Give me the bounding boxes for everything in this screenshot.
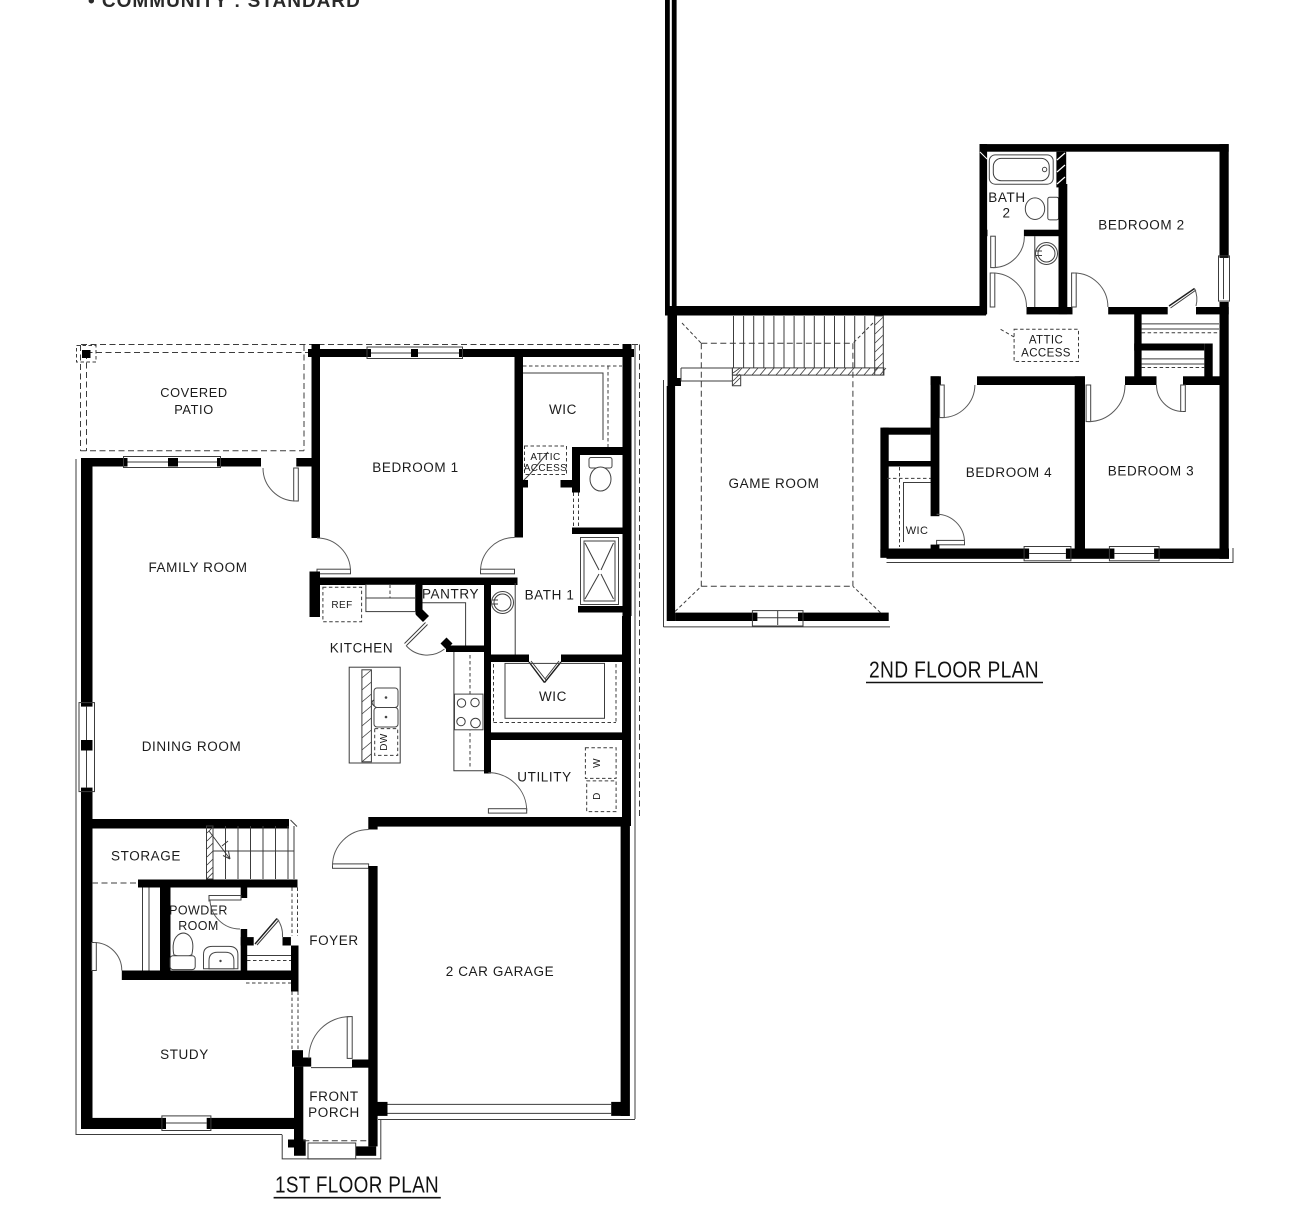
svg-text:2: 2 — [1002, 206, 1010, 221]
svg-text:GAME ROOM: GAME ROOM — [729, 476, 820, 491]
svg-text:ROOM: ROOM — [178, 919, 219, 933]
svg-text:2ND FLOOR PLAN: 2ND FLOOR PLAN — [869, 657, 1039, 683]
svg-text:POWDER: POWDER — [169, 904, 228, 918]
svg-text:ATTIC: ATTIC — [530, 452, 560, 463]
svg-text:UTILITY: UTILITY — [517, 770, 571, 785]
svg-text:KITCHEN: KITCHEN — [330, 641, 393, 656]
svg-text:BEDROOM 3: BEDROOM 3 — [1108, 464, 1194, 479]
svg-text:ACCESS: ACCESS — [524, 463, 568, 474]
svg-text:PORCH: PORCH — [308, 1105, 360, 1120]
svg-text:ACCESS: ACCESS — [1021, 348, 1071, 360]
svg-text:BATH: BATH — [988, 190, 1025, 205]
svg-text:1ST FLOOR PLAN: 1ST FLOOR PLAN — [275, 1172, 439, 1198]
svg-text:BATH 1: BATH 1 — [525, 588, 575, 603]
svg-text:FAMILY ROOM: FAMILY ROOM — [148, 560, 247, 575]
svg-text:DW: DW — [379, 733, 390, 751]
svg-text:BEDROOM 1: BEDROOM 1 — [372, 460, 458, 475]
svg-text:FOYER: FOYER — [309, 933, 359, 948]
svg-text:STUDY: STUDY — [160, 1047, 209, 1062]
svg-text:ATTIC: ATTIC — [1029, 335, 1063, 347]
svg-text:D: D — [592, 792, 603, 800]
svg-text:BEDROOM 2: BEDROOM 2 — [1098, 218, 1184, 233]
svg-text:• COMMUNITY : STANDARD: • COMMUNITY : STANDARD — [88, 0, 361, 12]
svg-text:W: W — [592, 758, 603, 768]
svg-text:BEDROOM 4: BEDROOM 4 — [966, 465, 1052, 480]
svg-text:REF: REF — [331, 600, 352, 611]
svg-text:PANTRY: PANTRY — [422, 587, 479, 602]
svg-text:DINING ROOM: DINING ROOM — [142, 739, 242, 754]
svg-text:2 CAR GARAGE: 2 CAR GARAGE — [446, 964, 554, 979]
svg-text:FRONT: FRONT — [309, 1089, 359, 1104]
svg-text:COVERED: COVERED — [160, 385, 228, 400]
svg-text:STORAGE: STORAGE — [111, 849, 181, 864]
svg-text:WIC: WIC — [906, 525, 929, 537]
svg-text:PATIO: PATIO — [174, 402, 214, 417]
svg-text:WIC: WIC — [539, 689, 567, 704]
svg-text:WIC: WIC — [549, 402, 577, 417]
